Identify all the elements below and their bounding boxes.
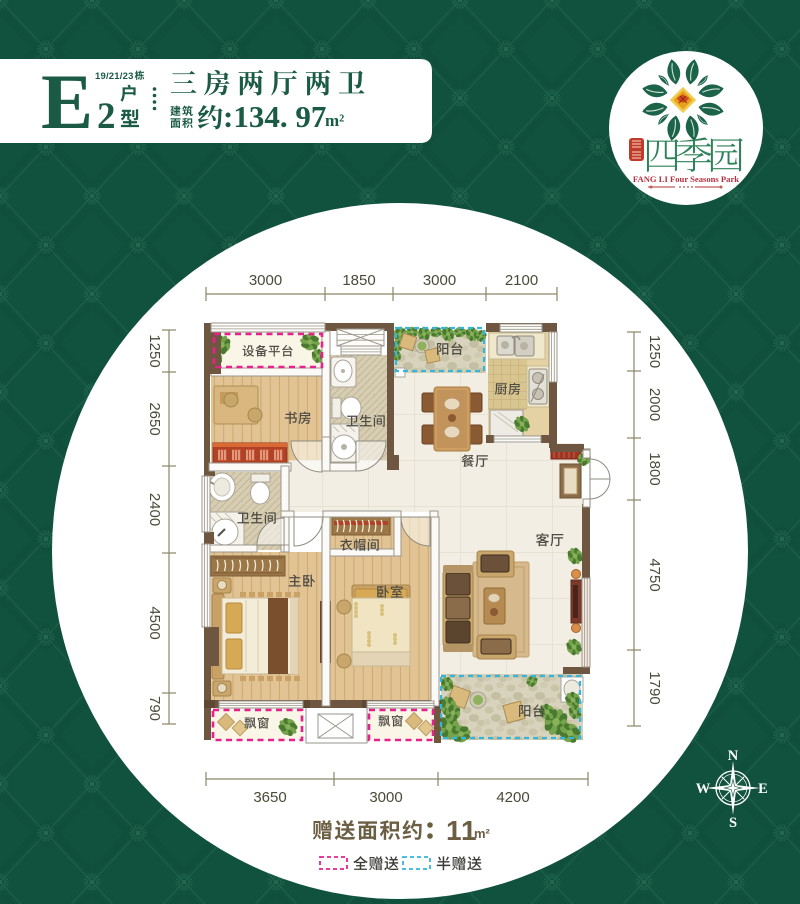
- svg-text:3000: 3000: [249, 272, 282, 289]
- svg-text:1850: 1850: [342, 272, 375, 289]
- svg-text:m²: m²: [325, 111, 344, 130]
- svg-text:S: S: [729, 815, 737, 831]
- svg-text:N: N: [728, 748, 739, 764]
- svg-text:2: 2: [97, 96, 116, 137]
- svg-text:E: E: [41, 58, 93, 145]
- svg-text:4500: 4500: [146, 606, 163, 639]
- svg-text:E: E: [758, 781, 768, 797]
- svg-text:3000: 3000: [423, 272, 456, 289]
- svg-text:1790: 1790: [646, 671, 663, 704]
- svg-text:4200: 4200: [496, 789, 529, 806]
- svg-text:4750: 4750: [646, 558, 663, 591]
- svg-text:2400: 2400: [146, 493, 163, 526]
- svg-text:1250: 1250: [146, 334, 163, 367]
- svg-text:2100: 2100: [505, 272, 538, 289]
- svg-text:2650: 2650: [146, 402, 163, 435]
- svg-text:3650: 3650: [253, 789, 286, 806]
- svg-text:1250: 1250: [646, 335, 663, 368]
- svg-text:W: W: [696, 781, 711, 797]
- svg-text:FANG LI Four Seasons Park: FANG LI Four Seasons Park: [633, 174, 739, 184]
- svg-text:m²: m²: [474, 826, 491, 841]
- svg-text:11: 11: [446, 815, 478, 846]
- svg-text:1800: 1800: [646, 452, 663, 485]
- svg-text:790: 790: [146, 696, 163, 721]
- svg-text:3000: 3000: [369, 789, 402, 806]
- svg-text:2000: 2000: [646, 388, 663, 421]
- svg-text:19/21/23: 19/21/23: [95, 71, 134, 82]
- svg-text::134. 97: :134. 97: [223, 99, 326, 134]
